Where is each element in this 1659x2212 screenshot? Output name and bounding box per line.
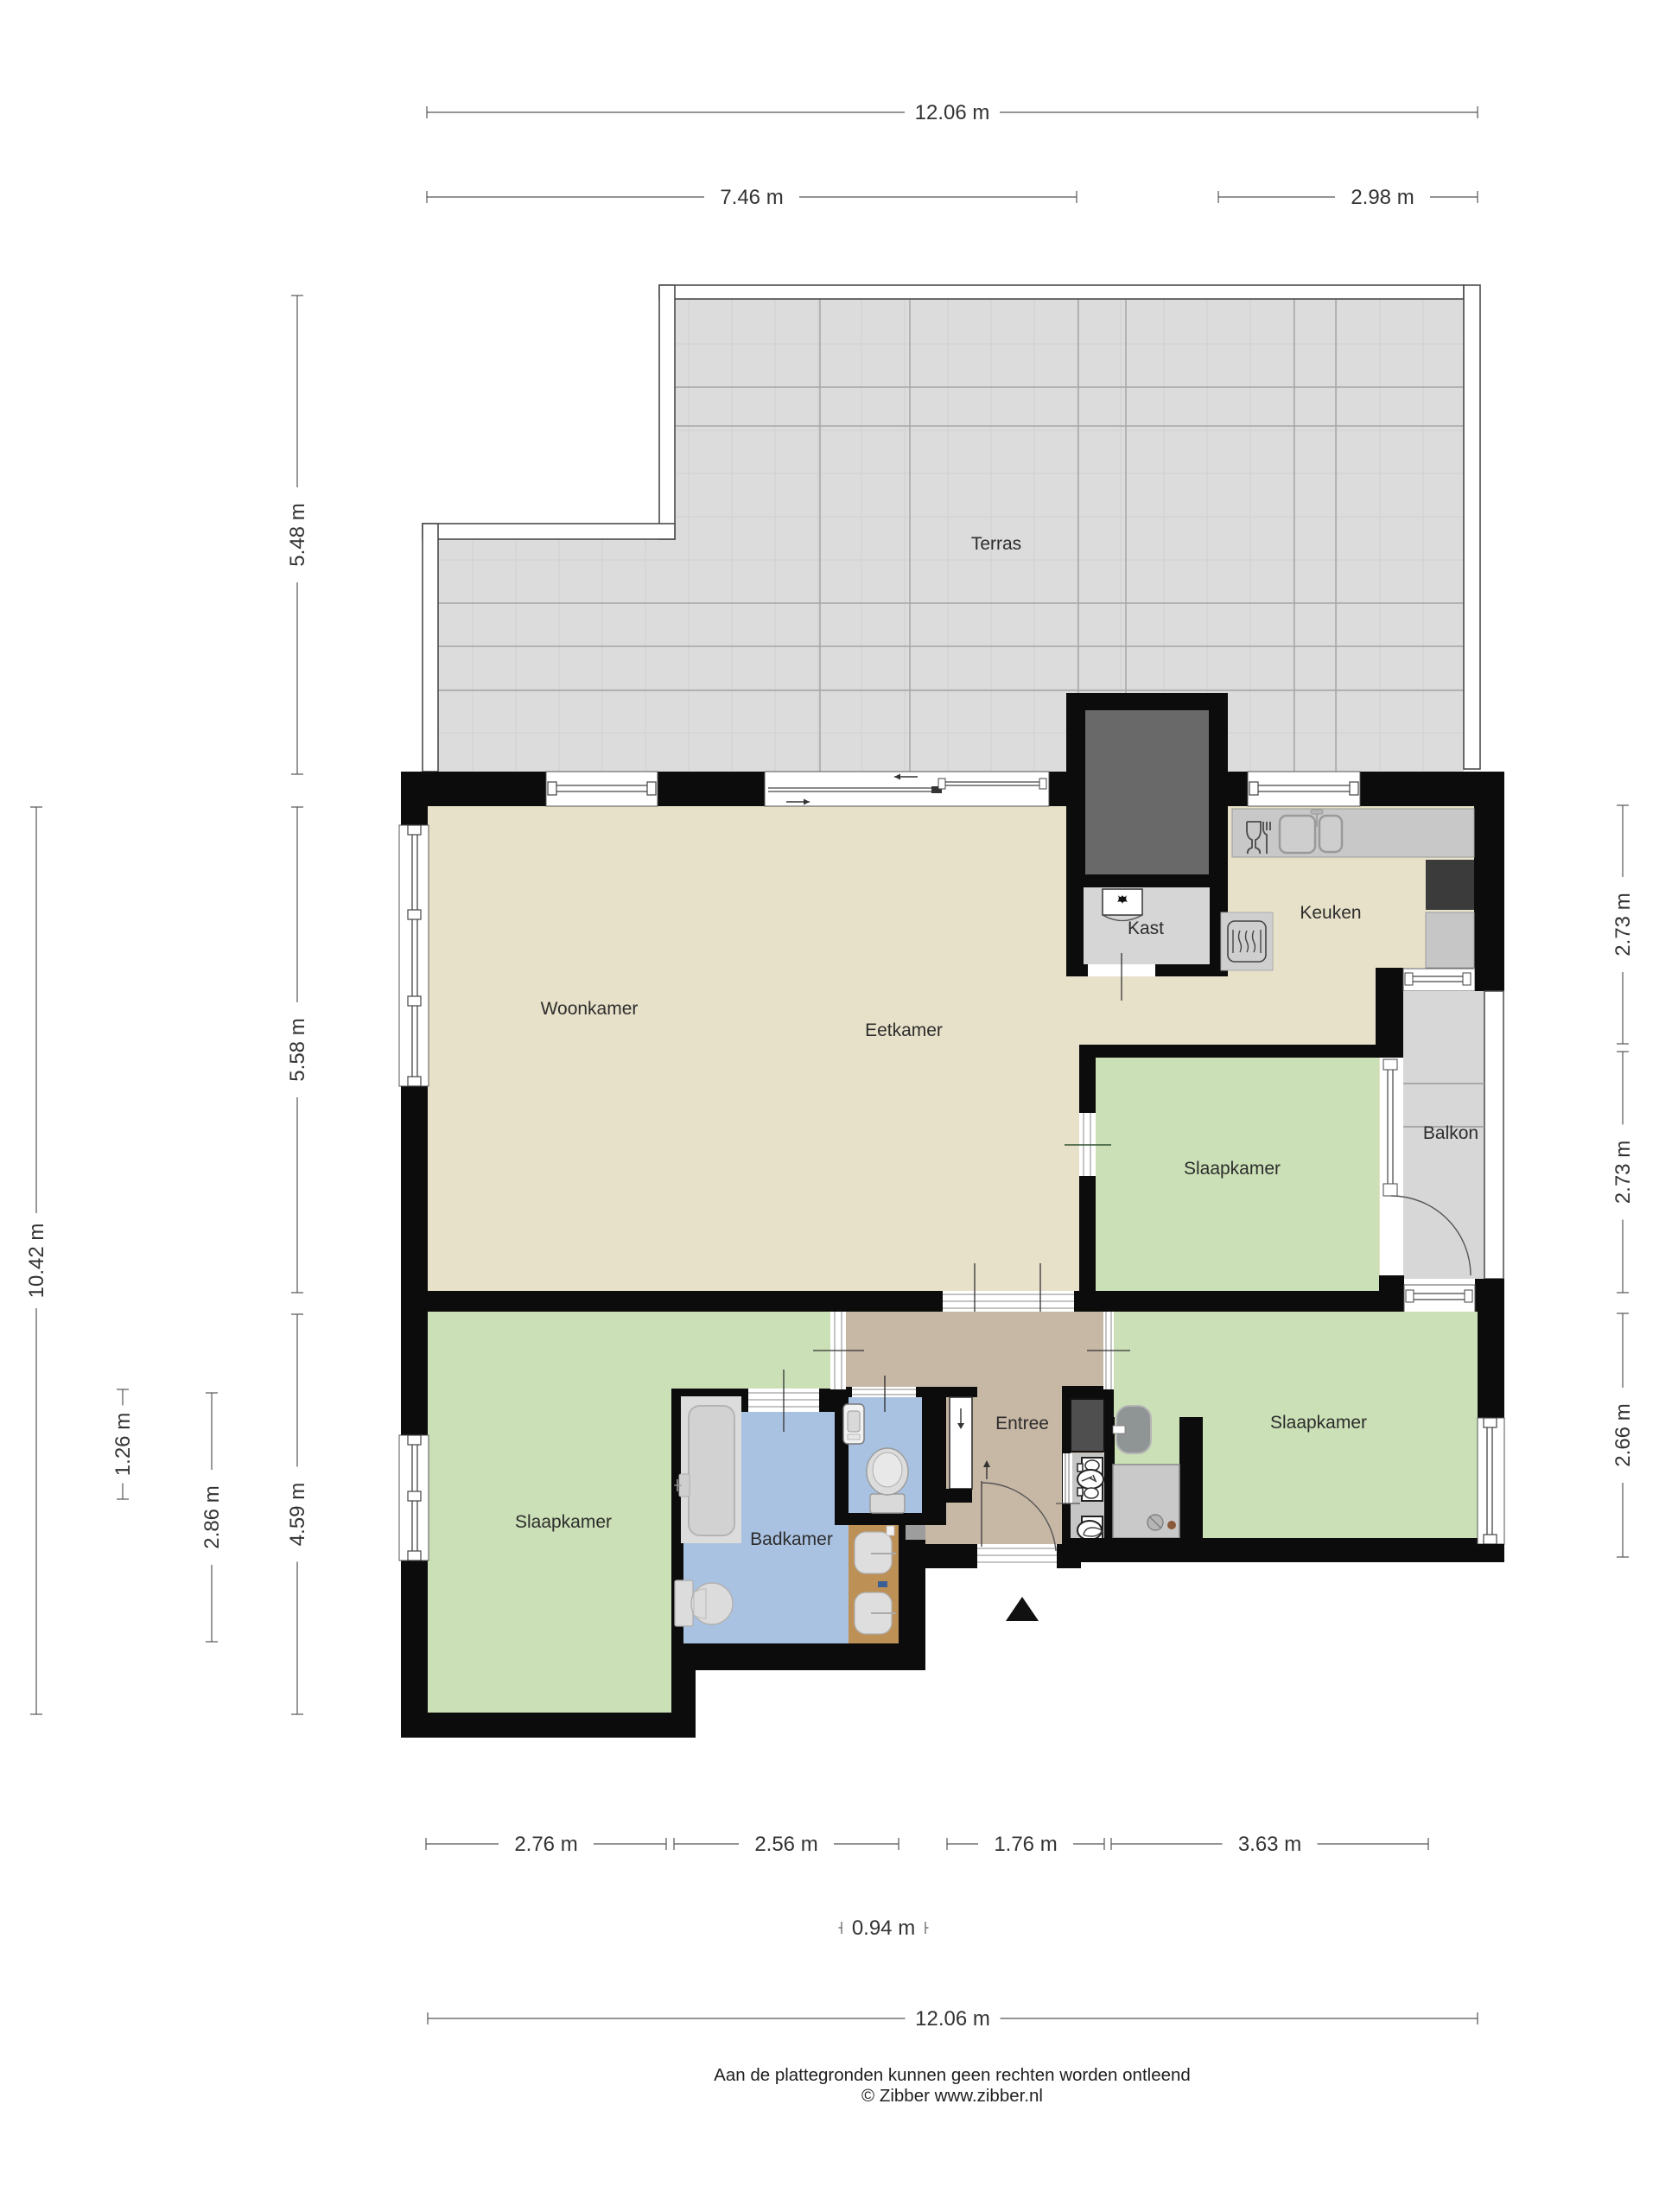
svg-text:2.66 m: 2.66 m xyxy=(1611,1403,1635,1466)
svg-text:4.59 m: 4.59 m xyxy=(286,1483,309,1546)
svg-text:© Zibber www.zibber.nl: © Zibber www.zibber.nl xyxy=(861,2086,1043,2106)
svg-text:Aan de plattegronden kunnen ge: Aan de plattegronden kunnen geen rechten… xyxy=(714,2065,1191,2085)
svg-text:3.63 m: 3.63 m xyxy=(1238,1833,1301,1856)
svg-text:0.94 m: 0.94 m xyxy=(852,1916,915,1940)
svg-text:12.06 m: 12.06 m xyxy=(915,2007,990,2031)
svg-text:1.26 m: 1.26 m xyxy=(111,1413,135,1476)
svg-text:2.73 m: 2.73 m xyxy=(1611,893,1635,956)
svg-text:5.58 m: 5.58 m xyxy=(286,1018,309,1081)
svg-text:Keuken: Keuken xyxy=(1300,903,1361,923)
svg-text:10.42 m: 10.42 m xyxy=(25,1224,48,1299)
svg-text:2.76 m: 2.76 m xyxy=(514,1833,577,1856)
svg-text:Slaapkamer: Slaapkamer xyxy=(1184,1159,1281,1179)
svg-text:12.06 m: 12.06 m xyxy=(915,101,990,124)
svg-text:Kast: Kast xyxy=(1128,918,1164,938)
svg-text:Balkon: Balkon xyxy=(1423,1123,1478,1143)
svg-text:2.98 m: 2.98 m xyxy=(1351,186,1414,209)
svg-text:2.86 m: 2.86 m xyxy=(200,1485,224,1548)
svg-text:1.76 m: 1.76 m xyxy=(994,1833,1057,1856)
svg-text:2.73 m: 2.73 m xyxy=(1611,1141,1635,1204)
svg-text:Eetkamer: Eetkamer xyxy=(865,1020,943,1040)
svg-text:Woonkamer: Woonkamer xyxy=(541,999,639,1019)
svg-text:Entree: Entree xyxy=(995,1414,1049,1433)
svg-text:Slaapkamer: Slaapkamer xyxy=(1270,1413,1367,1433)
svg-text:5.48 m: 5.48 m xyxy=(286,503,309,566)
svg-text:Terras: Terras xyxy=(971,534,1021,554)
svg-text:7.46 m: 7.46 m xyxy=(720,186,783,209)
svg-text:Badkamer: Badkamer xyxy=(750,1529,833,1549)
svg-text:Slaapkamer: Slaapkamer xyxy=(515,1512,612,1532)
svg-text:2.56 m: 2.56 m xyxy=(754,1833,817,1856)
